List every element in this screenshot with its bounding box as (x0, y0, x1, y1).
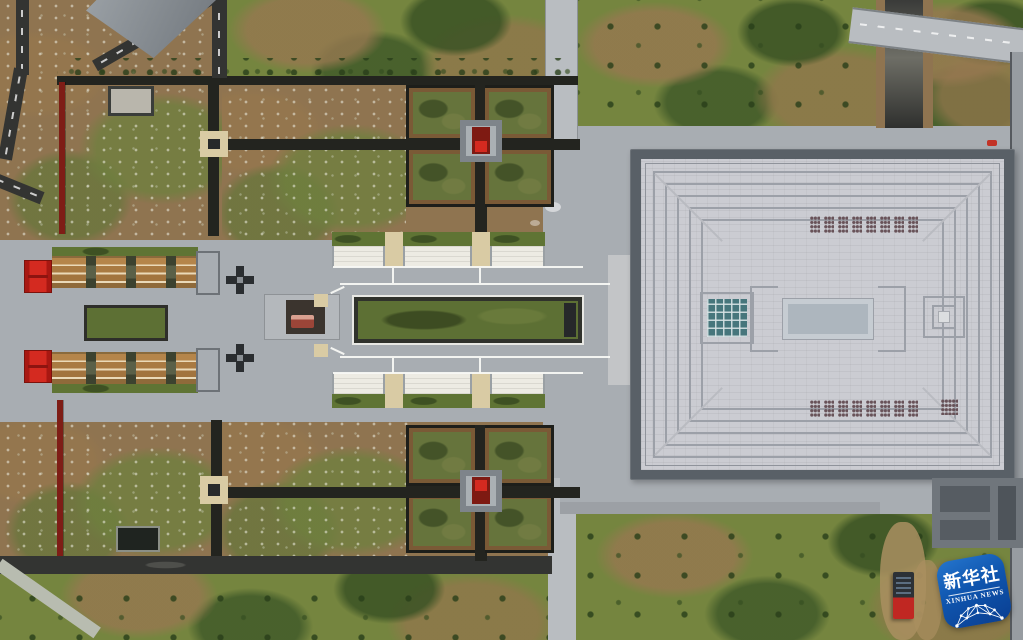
bare-trees-speckles (0, 0, 232, 248)
walkway-connector (392, 358, 394, 373)
road-south (0, 556, 552, 574)
walkway-node (314, 344, 328, 357)
skylight-single (941, 399, 958, 415)
annex-roof-section (940, 486, 990, 512)
walkway-line (333, 266, 583, 268)
monument-sculpture (291, 315, 314, 328)
red-gate-north (24, 260, 52, 293)
cross-pavilion-north (226, 266, 254, 294)
field-garden-west (222, 84, 406, 244)
canopy-end-cap (545, 246, 559, 267)
red-truck (893, 572, 914, 619)
white-canopy (332, 246, 385, 267)
skylight-row-south (810, 400, 918, 417)
field-top-center (225, 0, 555, 86)
skylight-cell (838, 400, 848, 417)
skylight-cell (838, 216, 848, 233)
bare-trees-speckles (222, 84, 406, 244)
central-planting-bed (84, 305, 168, 341)
skylight-cell (824, 216, 834, 233)
walkway-connector (392, 268, 394, 283)
path-garden-south-west (222, 487, 406, 498)
canopy-lawn (490, 232, 545, 246)
skylight-cell (894, 400, 904, 417)
white-canopy (403, 246, 472, 267)
annex-building (932, 478, 1023, 548)
north-boundary-wall (57, 76, 578, 85)
skylight-cell (866, 400, 876, 417)
apron-step-shadow (560, 502, 880, 514)
hall-center-courtyard (783, 299, 873, 339)
path-north-vertical (208, 84, 219, 236)
annex-roof-section (940, 520, 990, 540)
path-garden-south-east (554, 487, 580, 498)
skylight-cell (852, 400, 862, 417)
walkway-line (340, 283, 610, 285)
corridor-pavilion-break (126, 352, 136, 384)
white-canopy (490, 246, 545, 267)
cross-garden-north (406, 85, 554, 207)
cross-garden-south (406, 425, 554, 553)
plaza-stain (530, 220, 540, 226)
skylight-cell (880, 216, 890, 233)
skylight-cell (810, 400, 820, 417)
bare-trees-speckles (0, 420, 224, 558)
canopy-lawn (403, 394, 472, 408)
canopy-lawn (490, 394, 545, 408)
corridor-south-roof (52, 352, 198, 384)
walkway-line (340, 356, 610, 358)
skylight-cell (852, 216, 862, 233)
red-car-dot (987, 140, 997, 146)
road-top-vertical (212, 0, 227, 78)
path-garden-north-east (554, 139, 580, 150)
path-garden-north-west (219, 139, 406, 150)
skylight-cell (908, 216, 918, 233)
corridor-pavilion-break (166, 256, 176, 288)
hall-bracket-west (750, 286, 778, 352)
walkway-node (314, 294, 328, 307)
red-pavilion (472, 477, 490, 504)
shrub-dots (578, 0, 885, 128)
corridor-pavilion-break (166, 352, 176, 384)
white-canopy (490, 373, 545, 394)
path-node (200, 476, 228, 504)
corridor-north-roof (52, 256, 198, 288)
corridor-north-lawn (52, 247, 198, 256)
corridor-pavilion-break (86, 352, 96, 384)
skylight-cell (810, 216, 820, 233)
canopy-break (385, 373, 403, 408)
walkway-connector (479, 358, 481, 373)
xinhua-watermark: 新华社 XINHUA NEWS (935, 552, 1014, 631)
canopy-break (472, 373, 490, 408)
field-top-left (0, 0, 232, 248)
central-lawn-strip (352, 295, 584, 345)
skylight-cell (866, 216, 876, 233)
aerial-photo-memorial-park: 新华社 XINHUA NEWS (0, 0, 1023, 640)
lawn-end-monument (564, 303, 576, 337)
canopy-lawn (332, 232, 385, 246)
canopy-break (472, 232, 490, 267)
canopy-lawn (403, 232, 472, 246)
corridor-north-end-pavilion (196, 251, 220, 295)
canopy-break (385, 232, 403, 267)
corridor-south-lawn (52, 384, 198, 393)
road-left-vertical (16, 0, 29, 75)
skylight-cell (824, 400, 834, 417)
teal-skylight-grid (707, 299, 747, 337)
annex-roof-section (998, 486, 1016, 540)
roof-square-feature-core (938, 311, 950, 323)
walkway-connector (479, 268, 481, 283)
red-wall-southwest (57, 400, 63, 556)
canopy-end-cap (545, 373, 559, 394)
hall-bracket-east (878, 286, 906, 352)
canopy-lawn (332, 394, 385, 408)
white-canopy (403, 373, 472, 394)
red-pavilion (472, 127, 490, 154)
corridor-south-end-pavilion (196, 348, 220, 392)
skylight-cell (880, 400, 890, 417)
path-node (200, 131, 228, 157)
red-wall-west (59, 82, 65, 234)
skylight-cell (908, 400, 918, 417)
field-mid-left (0, 420, 224, 558)
skylight-row-north (810, 216, 918, 233)
skylight-cell (894, 216, 904, 233)
cross-pavilion-south (226, 344, 254, 372)
red-gate-south (24, 350, 52, 383)
small-building (108, 86, 154, 116)
corridor-pavilion-break (126, 256, 136, 288)
corridor-pavilion-break (86, 256, 96, 288)
white-canopy (332, 373, 385, 394)
pond (116, 526, 160, 552)
lawn-grass (358, 301, 578, 339)
field-top-right (578, 0, 885, 128)
walkway-line (333, 372, 583, 374)
